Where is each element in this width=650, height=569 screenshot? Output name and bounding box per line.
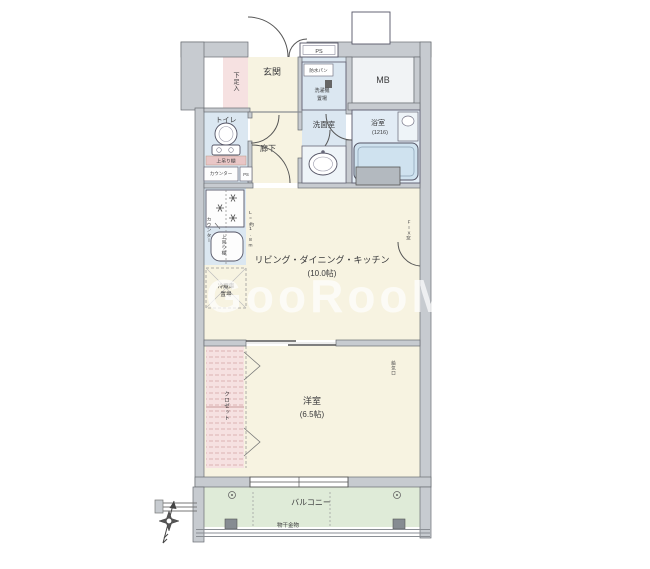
corridor-door-box xyxy=(352,12,390,44)
wall-hall-wash-a xyxy=(298,57,302,130)
drying-fixture-label: 物干金物 xyxy=(277,521,300,529)
drying-hook-dot xyxy=(231,494,233,496)
wall-bath-top xyxy=(348,103,420,110)
balcony-block xyxy=(393,519,405,529)
wall-left-block xyxy=(181,42,204,110)
wall-right-band xyxy=(420,42,431,487)
drying-hook-dot xyxy=(396,494,398,496)
wall-bottom-left xyxy=(195,477,250,487)
bath-sink-icon xyxy=(402,116,414,126)
wall-ldk-top-a xyxy=(204,183,253,188)
toilet-ps-label: PS xyxy=(243,172,249,177)
balcony-wall-right xyxy=(420,487,431,538)
ps-label: PS xyxy=(315,49,323,55)
western-label: 洋室 xyxy=(303,395,321,406)
waterproof-pan-label: 防水パン xyxy=(309,67,328,74)
wall-west-top-a xyxy=(204,340,246,346)
kitchen-shelf-label: 上吊り棚 xyxy=(221,234,226,257)
wall-bottom-right xyxy=(348,477,431,487)
room-hallway xyxy=(250,112,302,183)
floorplan-drawing: クロゼット 下足入 玄関 PS xyxy=(0,0,650,569)
bathroom-size-label: (1216) xyxy=(372,130,388,136)
toilet-shelf-label: 上吊り棚 xyxy=(216,158,235,165)
sink-icon xyxy=(211,232,243,261)
floorplan-page: クロゼット 下足入 玄関 PS xyxy=(0,0,650,569)
vent-label: 給気口 xyxy=(391,359,397,376)
laundry-label-2: 置場 xyxy=(317,95,327,102)
fix-window-label: FIX窓 xyxy=(406,219,412,241)
closet-label: クロゼット xyxy=(223,391,230,421)
sliding-door xyxy=(246,341,336,345)
balcony-wall-left xyxy=(193,487,204,542)
stove-icon xyxy=(206,190,244,227)
wall-mb-filler xyxy=(414,57,420,110)
mb-label: MB xyxy=(376,75,390,85)
ldk-label: リビング・ダイニング・キッチン xyxy=(254,254,389,265)
vanity-faucet-icon xyxy=(321,150,325,154)
balcony-block xyxy=(225,519,237,529)
wall-west-top-b xyxy=(336,340,420,346)
genkan-label: 玄関 xyxy=(263,66,281,77)
laundry-faucet-icon xyxy=(325,80,332,88)
balcony-handrail xyxy=(196,530,430,537)
wall-hall-wash-b xyxy=(298,158,302,183)
washroom-label: 洗面室 xyxy=(313,119,336,129)
balcony-window xyxy=(250,477,348,487)
wall-toilet-hall-a xyxy=(248,112,252,118)
watermark-text: GooRooM xyxy=(206,270,454,322)
toilet-tank-icon xyxy=(212,145,240,155)
pipe-icon xyxy=(155,500,197,513)
entry-door-arc-main xyxy=(248,17,288,57)
balcony-label: バルコニー xyxy=(291,498,331,507)
shoe-box-label: 下足入 xyxy=(232,72,239,92)
kitchen-counter-label: カウンター xyxy=(206,217,211,244)
wall-wash-bath-b xyxy=(346,140,352,183)
water-heater-box xyxy=(356,167,400,185)
wall-left-band xyxy=(195,108,204,487)
laundry-label-1: 洗濯機 xyxy=(314,87,329,94)
kitchen-length-label: L=約1.8m xyxy=(248,210,253,249)
wall-toilet-top xyxy=(204,108,250,112)
toilet-counter-label: カウンター xyxy=(210,170,233,177)
bathroom-label: 浴室 xyxy=(371,118,385,127)
western-size-label: (6.5帖) xyxy=(300,409,325,419)
